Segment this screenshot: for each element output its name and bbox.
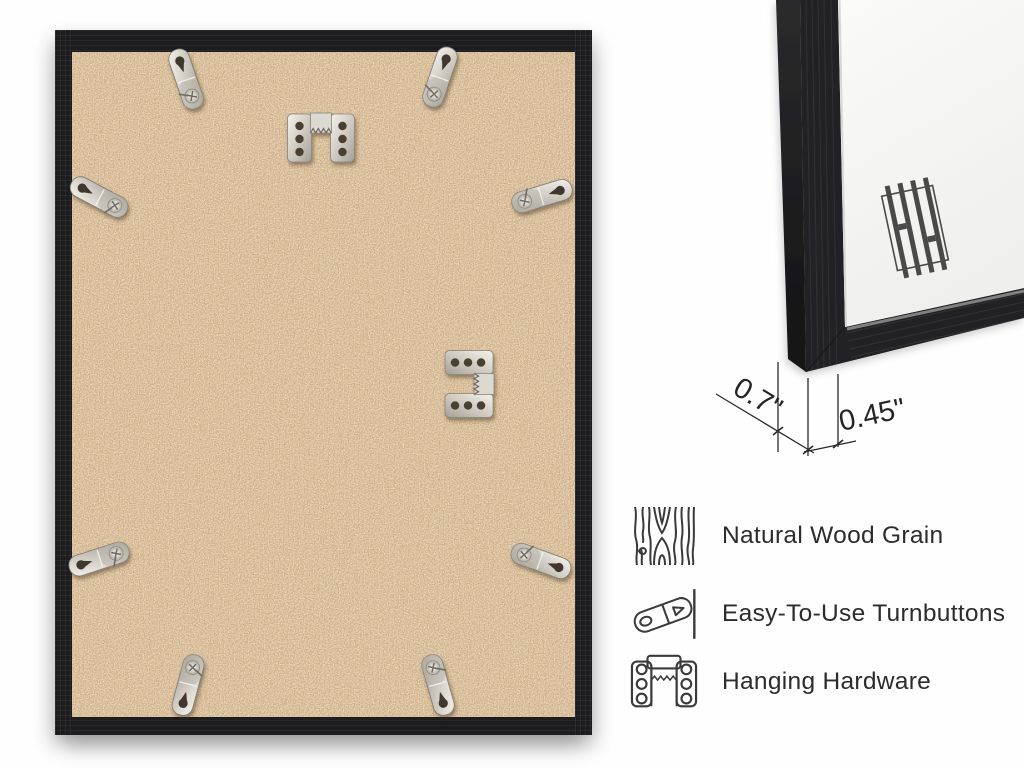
frame-front-corner-view [776, 0, 1024, 372]
feature-label: Hanging Hardware [722, 668, 931, 696]
frame-left-rail [55, 30, 72, 735]
feature-row-hanging-hardware: Hanging Hardware [630, 652, 931, 712]
wood-grain-icon [630, 507, 698, 565]
face-width-measurement-label: 0.45" [836, 393, 908, 438]
feature-label: Natural Wood Grain [722, 522, 943, 550]
frame-right-rail [575, 30, 592, 735]
mat-board [838, 0, 1024, 327]
hanging-hardware-icon [630, 653, 698, 711]
dimension-lines [716, 362, 856, 456]
feature-row-wood-grain: Natural Wood Grain [630, 506, 943, 566]
depth-measurement-label: 0.7" [728, 372, 788, 425]
mdf-fiber-texture [72, 52, 575, 717]
feature-label: Easy-To-Use Turnbuttons [722, 600, 1005, 628]
turnbutton-icon [630, 585, 698, 643]
frame-back-photo [55, 30, 592, 735]
mdf-backing-board [72, 52, 575, 717]
brand-logo-icon [880, 177, 950, 280]
feature-row-turnbuttons: Easy-To-Use Turnbuttons [630, 584, 1005, 644]
